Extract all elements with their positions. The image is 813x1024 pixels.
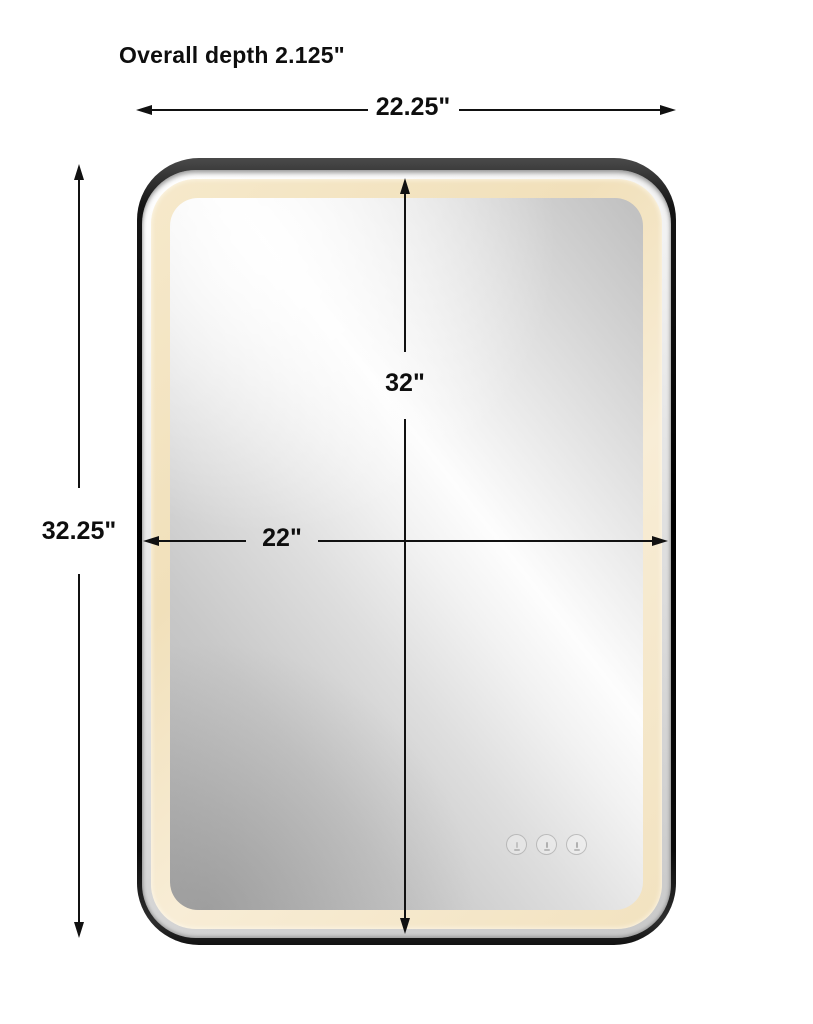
arrowhead-up-icon (400, 178, 410, 194)
dimension-diagram: Overall depth 2.125" 22.25" 32.25" 32" (0, 0, 813, 1024)
arrowhead-down-icon (74, 922, 84, 938)
dim-overall-height-label: 32.25" (29, 517, 129, 546)
brightness-icon-glyph (546, 842, 548, 848)
arrowhead-right-icon (660, 105, 676, 115)
arrowhead-left-icon (136, 105, 152, 115)
overall-depth-label: Overall depth 2.125" (119, 42, 345, 69)
dim-line-segment (318, 540, 652, 542)
dim-line-segment (151, 109, 368, 111)
arrowhead-left-icon (143, 536, 159, 546)
dim-line-segment (404, 419, 406, 919)
dim-line-segment (158, 540, 246, 542)
dim-line-segment (404, 193, 406, 352)
touch-controls (506, 834, 587, 855)
mirror-frame (137, 158, 676, 945)
arrowhead-right-icon (652, 536, 668, 546)
dim-line-segment (78, 179, 80, 488)
power-icon-glyph (516, 842, 518, 848)
brightness-icon (536, 834, 557, 855)
dim-line-segment (459, 109, 660, 111)
led-light-band (151, 179, 662, 929)
power-icon (506, 834, 527, 855)
light-temperature-icon (566, 834, 587, 855)
dim-inner-width-label: 22" (247, 524, 317, 553)
dim-inner-height-label: 32" (374, 369, 436, 398)
light-temperature-icon-glyph (576, 842, 578, 848)
arrowhead-up-icon (74, 164, 84, 180)
mirror-beveled-edge (142, 170, 671, 938)
dim-line-segment (78, 574, 80, 922)
arrowhead-down-icon (400, 918, 410, 934)
mirror-glass (170, 198, 643, 910)
dim-overall-width-label: 22.25" (366, 93, 460, 122)
